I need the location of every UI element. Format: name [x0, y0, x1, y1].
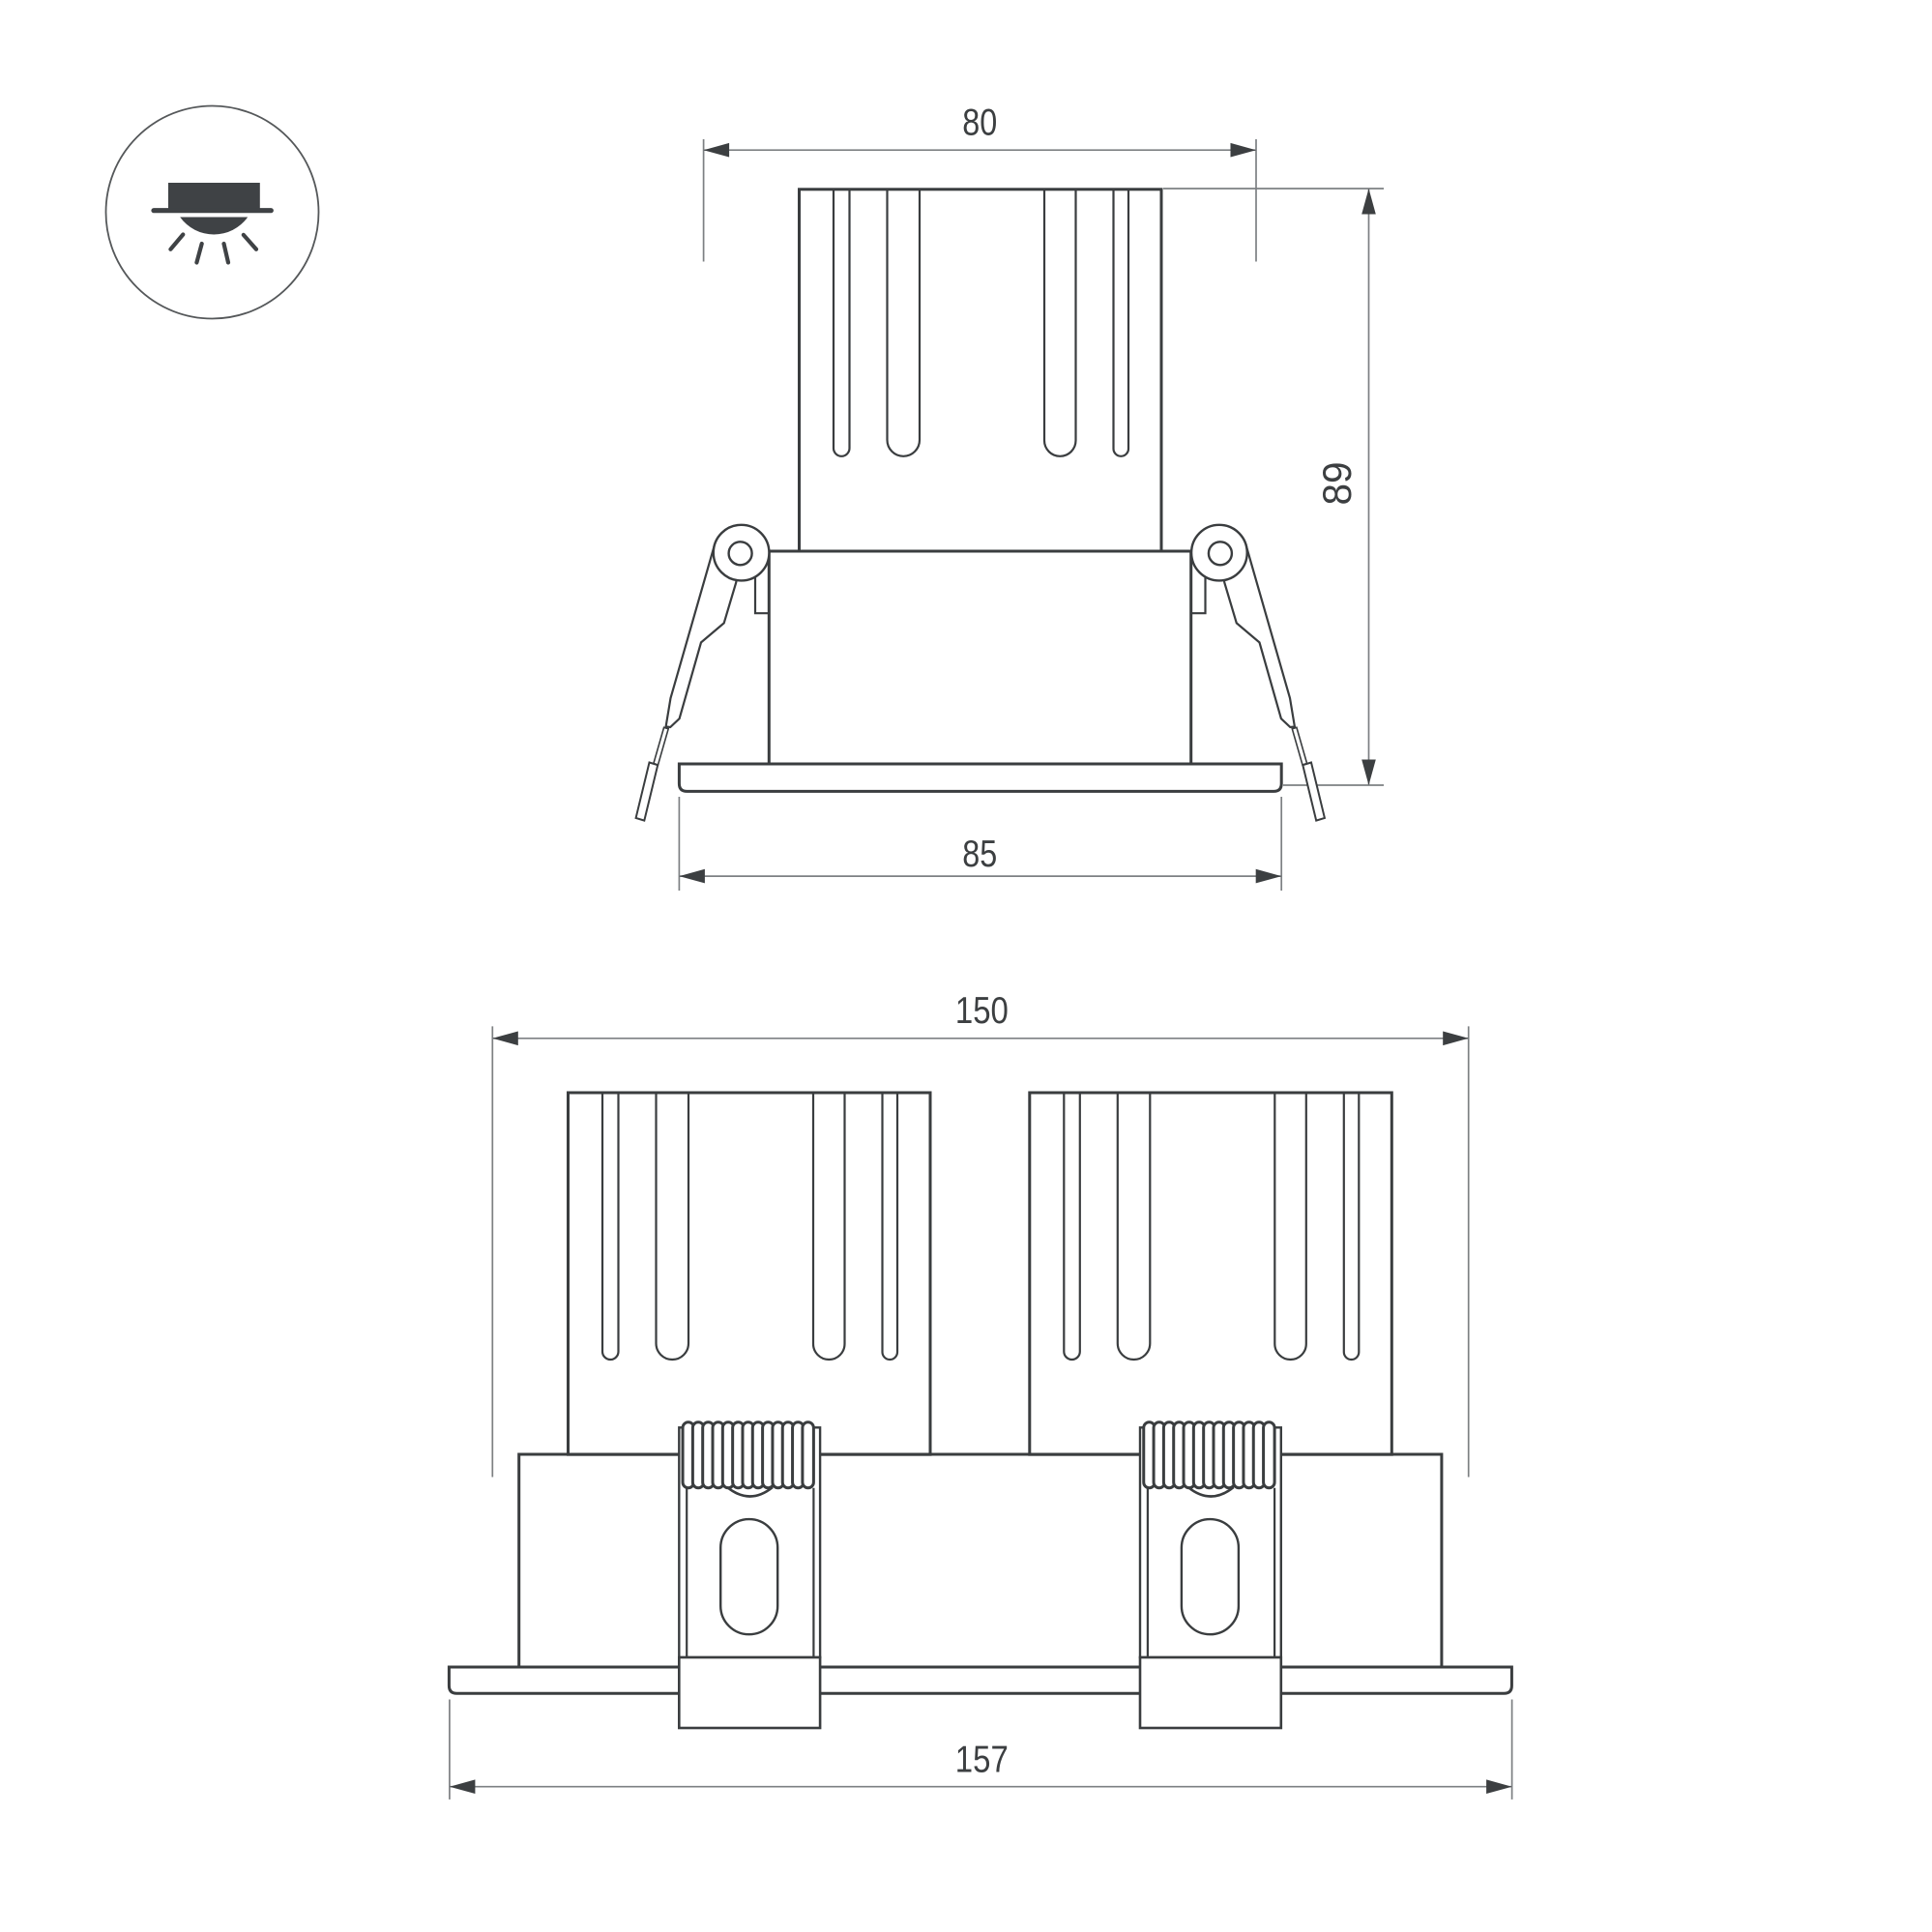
- svg-text:150: 150: [955, 990, 1009, 1032]
- svg-text:80: 80: [962, 102, 997, 144]
- svg-text:85: 85: [962, 834, 997, 875]
- svg-text:157: 157: [955, 1740, 1009, 1781]
- svg-text:89: 89: [1314, 462, 1360, 506]
